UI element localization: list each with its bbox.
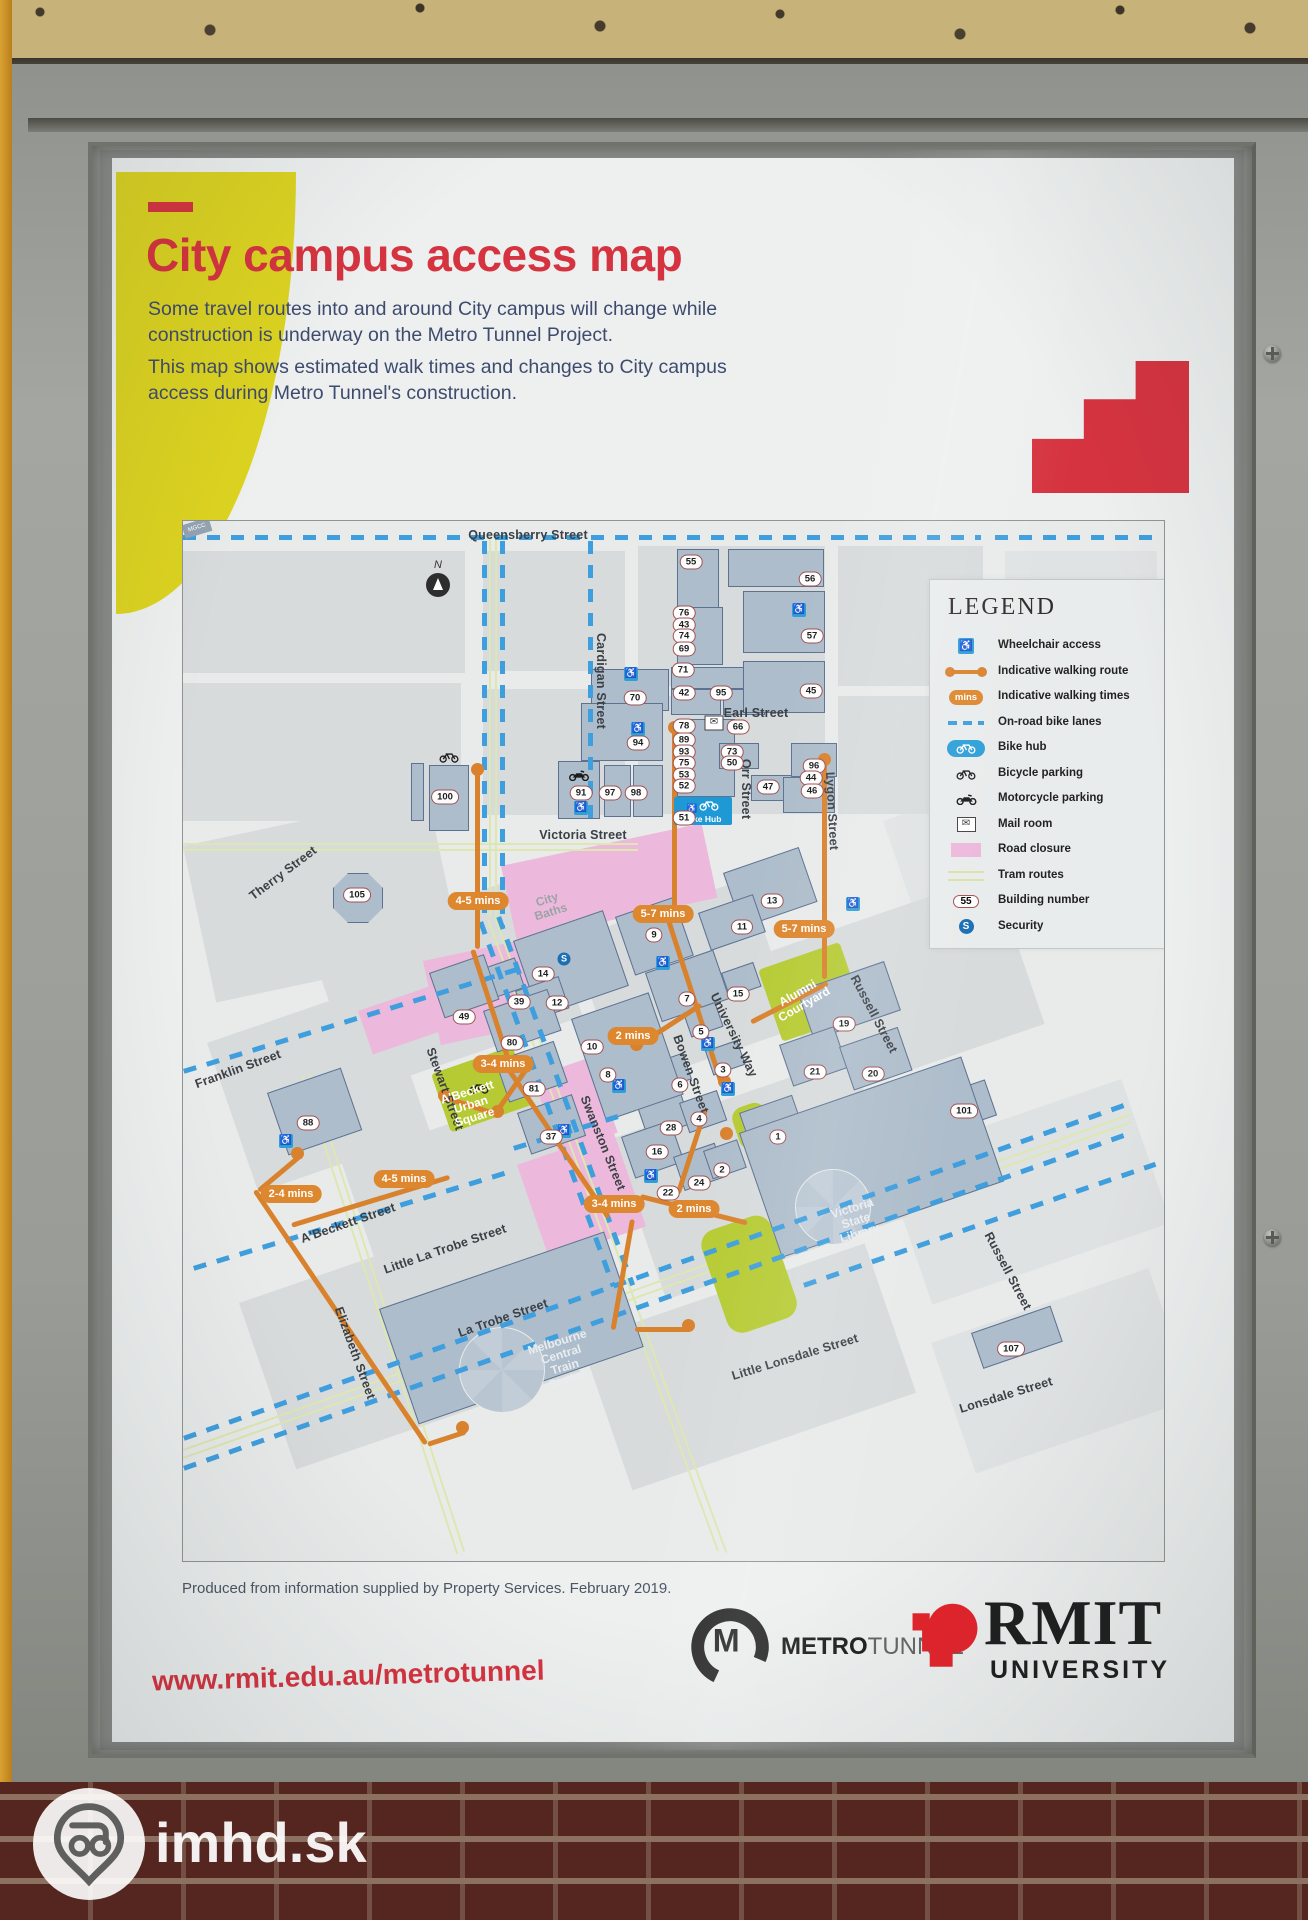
building-dome — [459, 1327, 545, 1413]
bicycle-parking-icon — [439, 750, 459, 768]
building-71-pill: 71 — [672, 663, 695, 678]
bike-lane-dashes — [500, 541, 505, 927]
wheelchair-icon: ♿ — [574, 801, 588, 815]
street-label: Victoria Street — [539, 828, 627, 842]
rmit-university-wordmark: UNIVERSITY — [990, 1656, 1170, 1685]
legend-item-label: Bicycle parking — [998, 767, 1083, 779]
walking-route-icon — [944, 662, 988, 682]
building-98-pill: 98 — [625, 786, 648, 801]
legend-item: ♿Wheelchair access — [944, 636, 1154, 658]
building-56-pill: 56 — [799, 572, 822, 587]
building-50-pill: 50 — [721, 756, 744, 771]
wheelchair-icon: ♿ — [944, 636, 988, 656]
svg-text:M: M — [713, 1622, 740, 1658]
building-78-pill: 78 — [673, 719, 696, 734]
bicycle-parking-icon — [944, 764, 988, 784]
building-20-pill: 20 — [862, 1067, 885, 1082]
walking-times-icon: mins — [944, 687, 988, 707]
walking-route-endpoint — [720, 1127, 733, 1140]
legend-item: Road closure — [944, 840, 1154, 862]
walk-time-pill: 3-4 mins — [584, 1195, 645, 1213]
walk-time-pill: 2 mins — [608, 1027, 659, 1045]
legend-item: ✉Mail room — [944, 815, 1154, 837]
building-15-pill: 15 — [727, 987, 750, 1002]
building-39-pill: 39 — [508, 995, 531, 1010]
legend-item: On-road bike lanes — [944, 713, 1154, 735]
north-arrow-icon: N — [426, 573, 450, 597]
rmit-metrotunnel-url: www.rmit.edu.au/metrotunnel — [152, 1655, 545, 1698]
legend-item-label: Wheelchair access — [998, 639, 1101, 651]
building-46-pill: 46 — [801, 784, 824, 799]
walking-route-segment — [475, 767, 480, 949]
building-28-pill: 28 — [660, 1121, 683, 1136]
rmit-mark-icon — [912, 1598, 978, 1682]
tram-route-line — [495, 535, 497, 917]
campus-building — [743, 591, 825, 653]
legend-item-label: Tram routes — [998, 869, 1064, 881]
walk-time-pill: 2 mins — [669, 1200, 720, 1218]
walk-time-pill: 3-4 mins — [473, 1055, 534, 1073]
building-11-pill: 11 — [731, 920, 753, 935]
legend-item-label: Mail room — [998, 818, 1052, 830]
street-label: Earl Street — [724, 706, 789, 720]
red-dash-accent — [148, 202, 193, 212]
building-4-pill: 4 — [690, 1112, 707, 1127]
legend-item-label: Building number — [998, 894, 1089, 906]
legend-item: Motorcycle parking — [944, 789, 1154, 811]
photo-of-campus-map-sign: City campus access map Some travel route… — [0, 0, 1308, 1920]
wheelchair-icon: ♿ — [656, 956, 670, 970]
building-24-pill: 24 — [688, 1176, 711, 1191]
city-block — [183, 551, 465, 673]
building-13-pill: 13 — [761, 894, 784, 909]
building-9-pill: 9 — [645, 928, 662, 943]
building-14-pill: 14 — [532, 967, 555, 982]
legend-panel: LEGEND ♿Wheelchair accessIndicative walk… — [929, 579, 1165, 949]
wheelchair-icon: ♿ — [631, 722, 645, 736]
wheelchair-icon: ♿ — [792, 603, 806, 617]
legend-item: Tram routes — [944, 866, 1154, 888]
legend-item: Bike hub — [944, 738, 1154, 760]
building-1-pill: 1 — [769, 1130, 786, 1145]
building-8-pill: 8 — [599, 1068, 616, 1083]
walk-time-pill: 5-7 mins — [633, 905, 694, 923]
motorcycle-parking-icon — [944, 789, 988, 809]
intro-paragraph-1: Some travel routes into and around City … — [148, 296, 788, 348]
intro-paragraph-2: This map shows estimated walk times and … — [148, 354, 788, 406]
building-100-pill: 100 — [431, 790, 459, 805]
building-94-pill: 94 — [627, 736, 650, 751]
legend-item: Bicycle parking — [944, 764, 1154, 786]
wheelchair-icon: ♿ — [846, 897, 860, 911]
rmit-wordmark: RMIT — [984, 1586, 1162, 1660]
imhd-watermark-text: imhd.sk — [155, 1810, 367, 1875]
building-70-pill: 70 — [624, 691, 647, 706]
rmit-stairs-accent — [1032, 361, 1189, 493]
building-5-pill: 5 — [692, 1025, 709, 1040]
tram-route-line — [183, 849, 638, 851]
screw-top — [1264, 345, 1281, 362]
tram-routes-icon — [944, 866, 988, 886]
road-closure-icon — [944, 840, 988, 860]
mail-room-icon: ✉ — [944, 815, 988, 835]
building-91-pill: 91 — [570, 786, 593, 801]
screw-bottom — [1264, 1229, 1281, 1246]
campus-building — [411, 763, 424, 821]
building-107-pill: 107 — [997, 1342, 1025, 1357]
tram-route-line — [489, 535, 491, 917]
building-10-pill: 10 — [581, 1040, 604, 1055]
building-number-icon: 55 — [944, 891, 988, 911]
legend-item: SSecurity — [944, 917, 1154, 939]
walk-time-pill: 4-5 mins — [374, 1170, 435, 1188]
wheelchair-icon: ♿ — [612, 1079, 626, 1093]
building-37-pill: 37 — [540, 1130, 563, 1145]
building-52-pill: 52 — [673, 779, 696, 794]
poster: City campus access map Some travel route… — [112, 158, 1234, 1742]
building-2-pill: 2 — [713, 1163, 730, 1178]
motorcycle-parking-icon — [569, 768, 590, 786]
metro-word: METRO — [781, 1633, 868, 1660]
imhd-watermark: imhd.sk — [33, 1788, 353, 1908]
bike-lane-dashes — [995, 535, 1163, 540]
legend-item-label: Bike hub — [998, 741, 1047, 753]
building-47-pill: 47 — [757, 780, 780, 795]
security-icon: S — [944, 917, 988, 937]
wheelchair-icon: ♿ — [624, 667, 638, 681]
legend-title: LEGEND — [948, 594, 1056, 621]
building-42-pill: 42 — [673, 686, 696, 701]
building-7-pill: 7 — [678, 992, 695, 1007]
street-label: Cardigan Street — [594, 633, 608, 729]
walking-route-endpoint — [291, 1147, 304, 1160]
north-label: N — [434, 559, 442, 571]
building-88-pill: 88 — [297, 1116, 320, 1131]
building-97-pill: 97 — [599, 786, 622, 801]
city-block — [931, 1268, 1165, 1473]
legend-item-label: Motorcycle parking — [998, 792, 1103, 804]
building-105-pill: 105 — [343, 888, 371, 903]
building-81-pill: 81 — [523, 1082, 546, 1097]
rmit-logo: RMIT UNIVERSITY — [912, 1594, 1234, 1694]
building-55-pill: 55 — [680, 555, 703, 570]
legend-item-label: Indicative walking times — [998, 690, 1130, 702]
building-69-pill: 69 — [673, 642, 696, 657]
building-22-pill: 22 — [657, 1186, 680, 1201]
wheelchair-icon: ♿ — [279, 1134, 293, 1148]
yellow-pole — [0, 0, 12, 1920]
security-icon: S — [558, 953, 571, 966]
imhd-logo-icon — [33, 1788, 145, 1900]
building-21-pill: 21 — [804, 1065, 827, 1080]
building-57-pill: 57 — [801, 629, 824, 644]
wheelchair-icon: ♿ — [644, 1169, 658, 1183]
legend-item: minsIndicative walking times — [944, 687, 1154, 709]
mail-room-icon: ✉ — [705, 716, 724, 731]
walk-time-pill: 4-5 mins — [448, 892, 509, 910]
campus-map: LEGEND ♿Wheelchair accessIndicative walk… — [182, 520, 1165, 1562]
building-45-pill: 45 — [800, 684, 823, 699]
walk-time-pill: 2-4 mins — [261, 1185, 322, 1203]
bike-lane-dashes — [482, 541, 487, 913]
walking-route-endpoint — [471, 763, 484, 776]
walking-route-endpoint — [456, 1421, 469, 1434]
building-3-pill: 3 — [714, 1063, 731, 1078]
legend-item-label: Road closure — [998, 843, 1071, 855]
building-6-pill: 6 — [671, 1078, 688, 1093]
legend-item: 55Building number — [944, 891, 1154, 913]
metro-tunnel-mark-icon: M — [687, 1604, 773, 1690]
legend-item-label: Indicative walking route — [998, 665, 1128, 677]
footnote: Produced from information supplied by Pr… — [182, 1580, 671, 1597]
building-16-pill: 16 — [646, 1145, 669, 1160]
legend-item-label: On-road bike lanes — [998, 716, 1102, 728]
building-51-pill: 51 — [673, 811, 696, 826]
wall-top — [0, 0, 1308, 64]
walk-time-pill: 5-7 mins — [774, 920, 835, 938]
tram-route-line — [183, 843, 638, 845]
legend-item: Indicative walking route — [944, 662, 1154, 684]
building-101-pill: 101 — [950, 1104, 978, 1119]
page-title: City campus access map — [146, 228, 682, 282]
wheelchair-icon: ♿ — [721, 1082, 735, 1096]
building-95-pill: 95 — [710, 686, 733, 701]
building-66-pill: 66 — [727, 720, 750, 735]
walking-route-endpoint — [682, 1319, 695, 1332]
street-label: Queensberry Street — [468, 528, 588, 542]
bike-hub-icon — [944, 738, 988, 758]
building-19-pill: 19 — [833, 1017, 856, 1032]
building-12-pill: 12 — [546, 996, 569, 1011]
building-80-pill: 80 — [501, 1036, 524, 1051]
bike-lanes-icon — [944, 713, 988, 733]
case-groove — [28, 118, 1308, 132]
building-49-pill: 49 — [453, 1010, 476, 1025]
legend-item-label: Security — [998, 920, 1043, 932]
